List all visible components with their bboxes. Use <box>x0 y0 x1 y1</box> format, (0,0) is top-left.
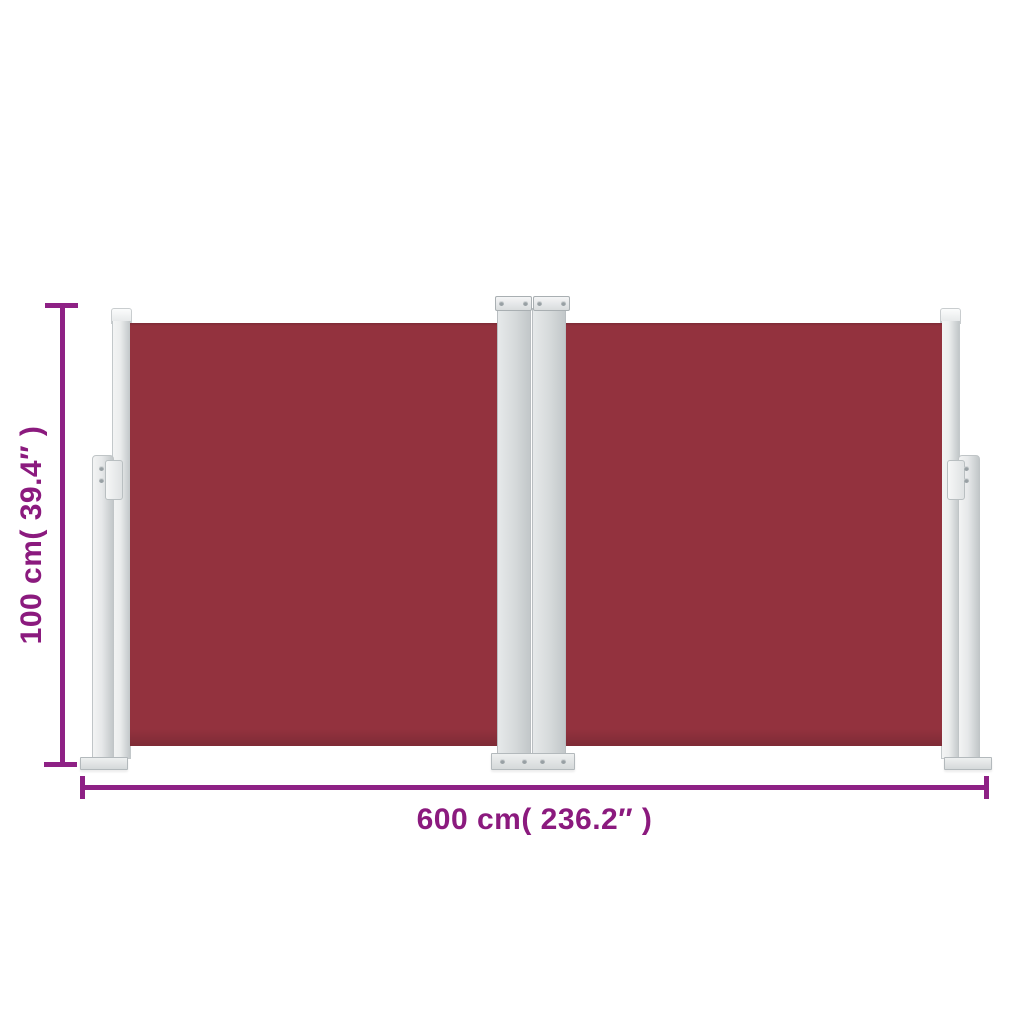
screw-icon <box>561 301 566 306</box>
height-dimension-line <box>60 305 65 765</box>
awning-fabric-right <box>563 323 942 746</box>
height-dimension-label: 100 cm( 39.4″ ) <box>12 305 52 765</box>
right-base-plate <box>944 757 992 770</box>
right-support-post <box>958 455 980 760</box>
center-cassette-cap-left <box>495 296 532 311</box>
width-dimension-label: 600 cm( 236.2″ ) <box>82 803 987 837</box>
center-base-plate <box>491 753 575 770</box>
left-roller-pole <box>112 321 131 759</box>
screw-icon <box>537 301 542 306</box>
right-post-bracket <box>947 460 965 500</box>
width-dimension-line <box>82 785 987 790</box>
screw-icon <box>522 759 527 764</box>
screw-icon <box>964 466 969 471</box>
screw-icon <box>500 759 505 764</box>
product-image: 100 cm( 39.4″ ) 600 cm( 236.2″ ) <box>0 0 1024 1024</box>
screw-icon <box>964 478 969 483</box>
center-cassette-right-post <box>532 308 566 755</box>
left-support-post <box>92 455 114 760</box>
left-post-bracket <box>105 460 123 500</box>
screw-icon <box>499 301 504 306</box>
awning-fabric-left <box>130 323 498 746</box>
screw-icon <box>561 759 566 764</box>
screw-icon <box>540 759 545 764</box>
screw-icon <box>99 478 104 483</box>
width-dimension-right-tick <box>984 776 989 799</box>
left-base-plate <box>80 757 128 770</box>
screw-icon <box>523 301 528 306</box>
center-cassette-left-post <box>497 308 531 755</box>
screw-icon <box>99 466 104 471</box>
center-cassette-cap-right <box>533 296 570 311</box>
